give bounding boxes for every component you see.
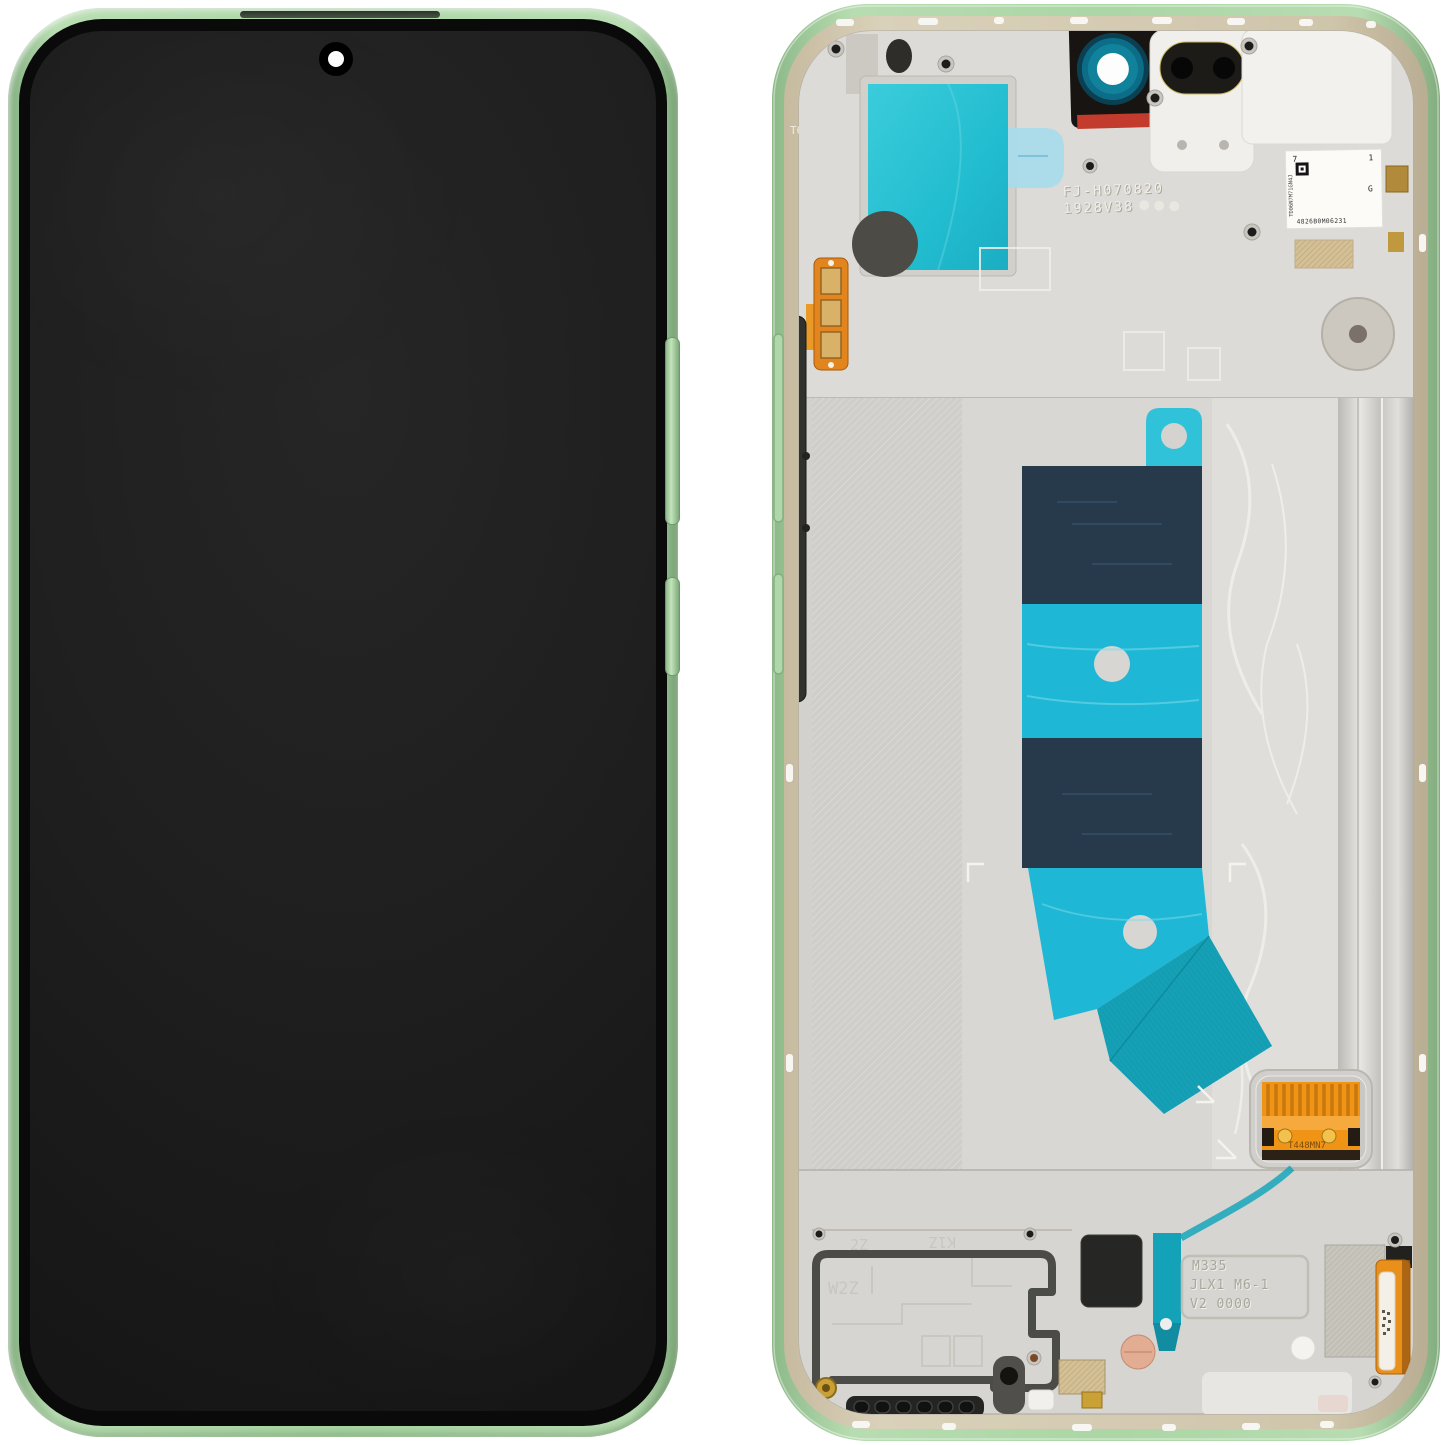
qr-code: [1296, 162, 1309, 175]
gold-contact-small: [1388, 232, 1404, 252]
mesh-pad: [1295, 240, 1353, 268]
antenna-flex: [1376, 1260, 1410, 1374]
front-screen-off: [30, 31, 656, 1411]
gold-contact: [1386, 166, 1408, 192]
tape-navy-bottom: [1022, 738, 1202, 868]
qr-corner-right: 1: [1368, 153, 1373, 162]
proximity-sensor-housing: [1150, 30, 1254, 172]
panel-line1: M335: [1192, 1259, 1227, 1274]
display-flex-connector: T448MN7: [1250, 1070, 1372, 1168]
qr-label: 7 1 G 4826B0M06231 TD06N7M71GN4J: [1285, 149, 1382, 229]
qr-bottom-code: 4826B0M06231: [1297, 218, 1347, 226]
speaker-mark-c: W2Z: [828, 1279, 859, 1299]
embossed-circle: [1322, 298, 1394, 370]
bottom-plastic: [1202, 1372, 1352, 1416]
phone-back-view: T6: [772, 4, 1440, 1441]
top-right-plastic: [1242, 30, 1392, 144]
qr-side-right: G: [1368, 184, 1373, 193]
white-button-dome: [1291, 1336, 1315, 1360]
right-rail: [1338, 398, 1413, 1170]
white-nub: [1028, 1390, 1054, 1410]
black-grommet: [886, 39, 912, 73]
front-camera-punch-hole: [319, 42, 353, 76]
foam-disc: [852, 211, 918, 277]
back-side-buttons: [774, 334, 783, 674]
camera-gasket-red: [1077, 113, 1153, 129]
panel-line2: JLX1 M6-1: [1190, 1278, 1269, 1293]
stamp-line2: 1928V38: [1063, 199, 1134, 217]
front-camera-module: [1069, 20, 1160, 129]
front-camera-lens-icon: [328, 51, 344, 67]
middle-chassis-zone: [788, 316, 1413, 1170]
gold-tab: [1082, 1392, 1102, 1408]
tape-navy-top: [1022, 466, 1202, 604]
volume-button: [665, 337, 680, 525]
qr-side-code: TD06N7M71GN4J: [1288, 174, 1295, 216]
phone-front-view: [8, 8, 678, 1437]
mesh-texture-left: [812, 398, 962, 1170]
qr-corner-left: 7: [1292, 155, 1297, 164]
black-module: [1081, 1235, 1142, 1307]
copper-coil-disc: [1121, 1335, 1155, 1369]
gold-mesh-pad: [1059, 1360, 1105, 1394]
speaker-mark-a: 2Z: [850, 1236, 868, 1254]
connector-label-text: T448MN7: [1288, 1141, 1326, 1151]
power-button: [665, 577, 680, 676]
flex-label: [1379, 1272, 1395, 1370]
speaker-mark-b: K1Z: [929, 1233, 956, 1251]
top-chassis-zone: 7 1 G 4826B0M06231 TD06N7M71GN4J FJ-H070…: [799, 20, 1413, 399]
earpiece-slit: [240, 11, 440, 18]
product-photo-canvas: T6: [0, 0, 1445, 1445]
adhesive-pull-tab: [1008, 128, 1064, 188]
panel-line3: V2 0000: [1190, 1297, 1252, 1312]
mic-pill: [993, 1356, 1025, 1414]
teal-ribbon: [1153, 1233, 1181, 1351]
